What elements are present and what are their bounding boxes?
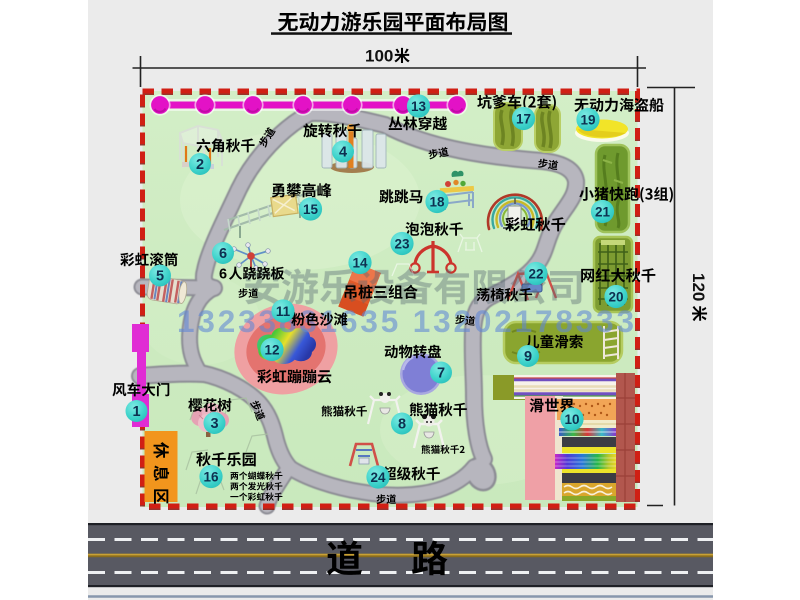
svg-text:6: 6 <box>219 246 227 262</box>
svg-text:3: 3 <box>210 416 218 432</box>
svg-text:24: 24 <box>370 470 386 485</box>
svg-text:7: 7 <box>437 366 445 382</box>
svg-text:6: 6 <box>219 267 227 283</box>
svg-text:14: 14 <box>352 255 368 270</box>
svg-text:120: 120 <box>689 273 708 301</box>
svg-text:20: 20 <box>608 289 623 304</box>
svg-text:23: 23 <box>394 236 410 251</box>
svg-text:100: 100 <box>365 47 393 66</box>
svg-text:1: 1 <box>132 404 140 420</box>
svg-text:15: 15 <box>303 202 319 217</box>
svg-text:16: 16 <box>203 469 219 484</box>
svg-text:19: 19 <box>580 112 595 127</box>
svg-text:12: 12 <box>264 342 279 357</box>
svg-text:11: 11 <box>276 304 291 319</box>
svg-text:13: 13 <box>411 99 427 114</box>
svg-text:18: 18 <box>429 194 445 209</box>
svg-text:8: 8 <box>398 417 406 433</box>
svg-text:5: 5 <box>156 269 164 285</box>
svg-text:17: 17 <box>516 111 531 126</box>
svg-text:10: 10 <box>564 412 579 427</box>
svg-text:2: 2 <box>196 157 204 173</box>
svg-text:9: 9 <box>524 349 532 365</box>
svg-text:4: 4 <box>339 145 347 161</box>
svg-text:13233831635 13202178333: 13233831635 13202178333 <box>177 303 634 339</box>
svg-text:22: 22 <box>528 266 543 281</box>
svg-text:21: 21 <box>595 204 611 219</box>
